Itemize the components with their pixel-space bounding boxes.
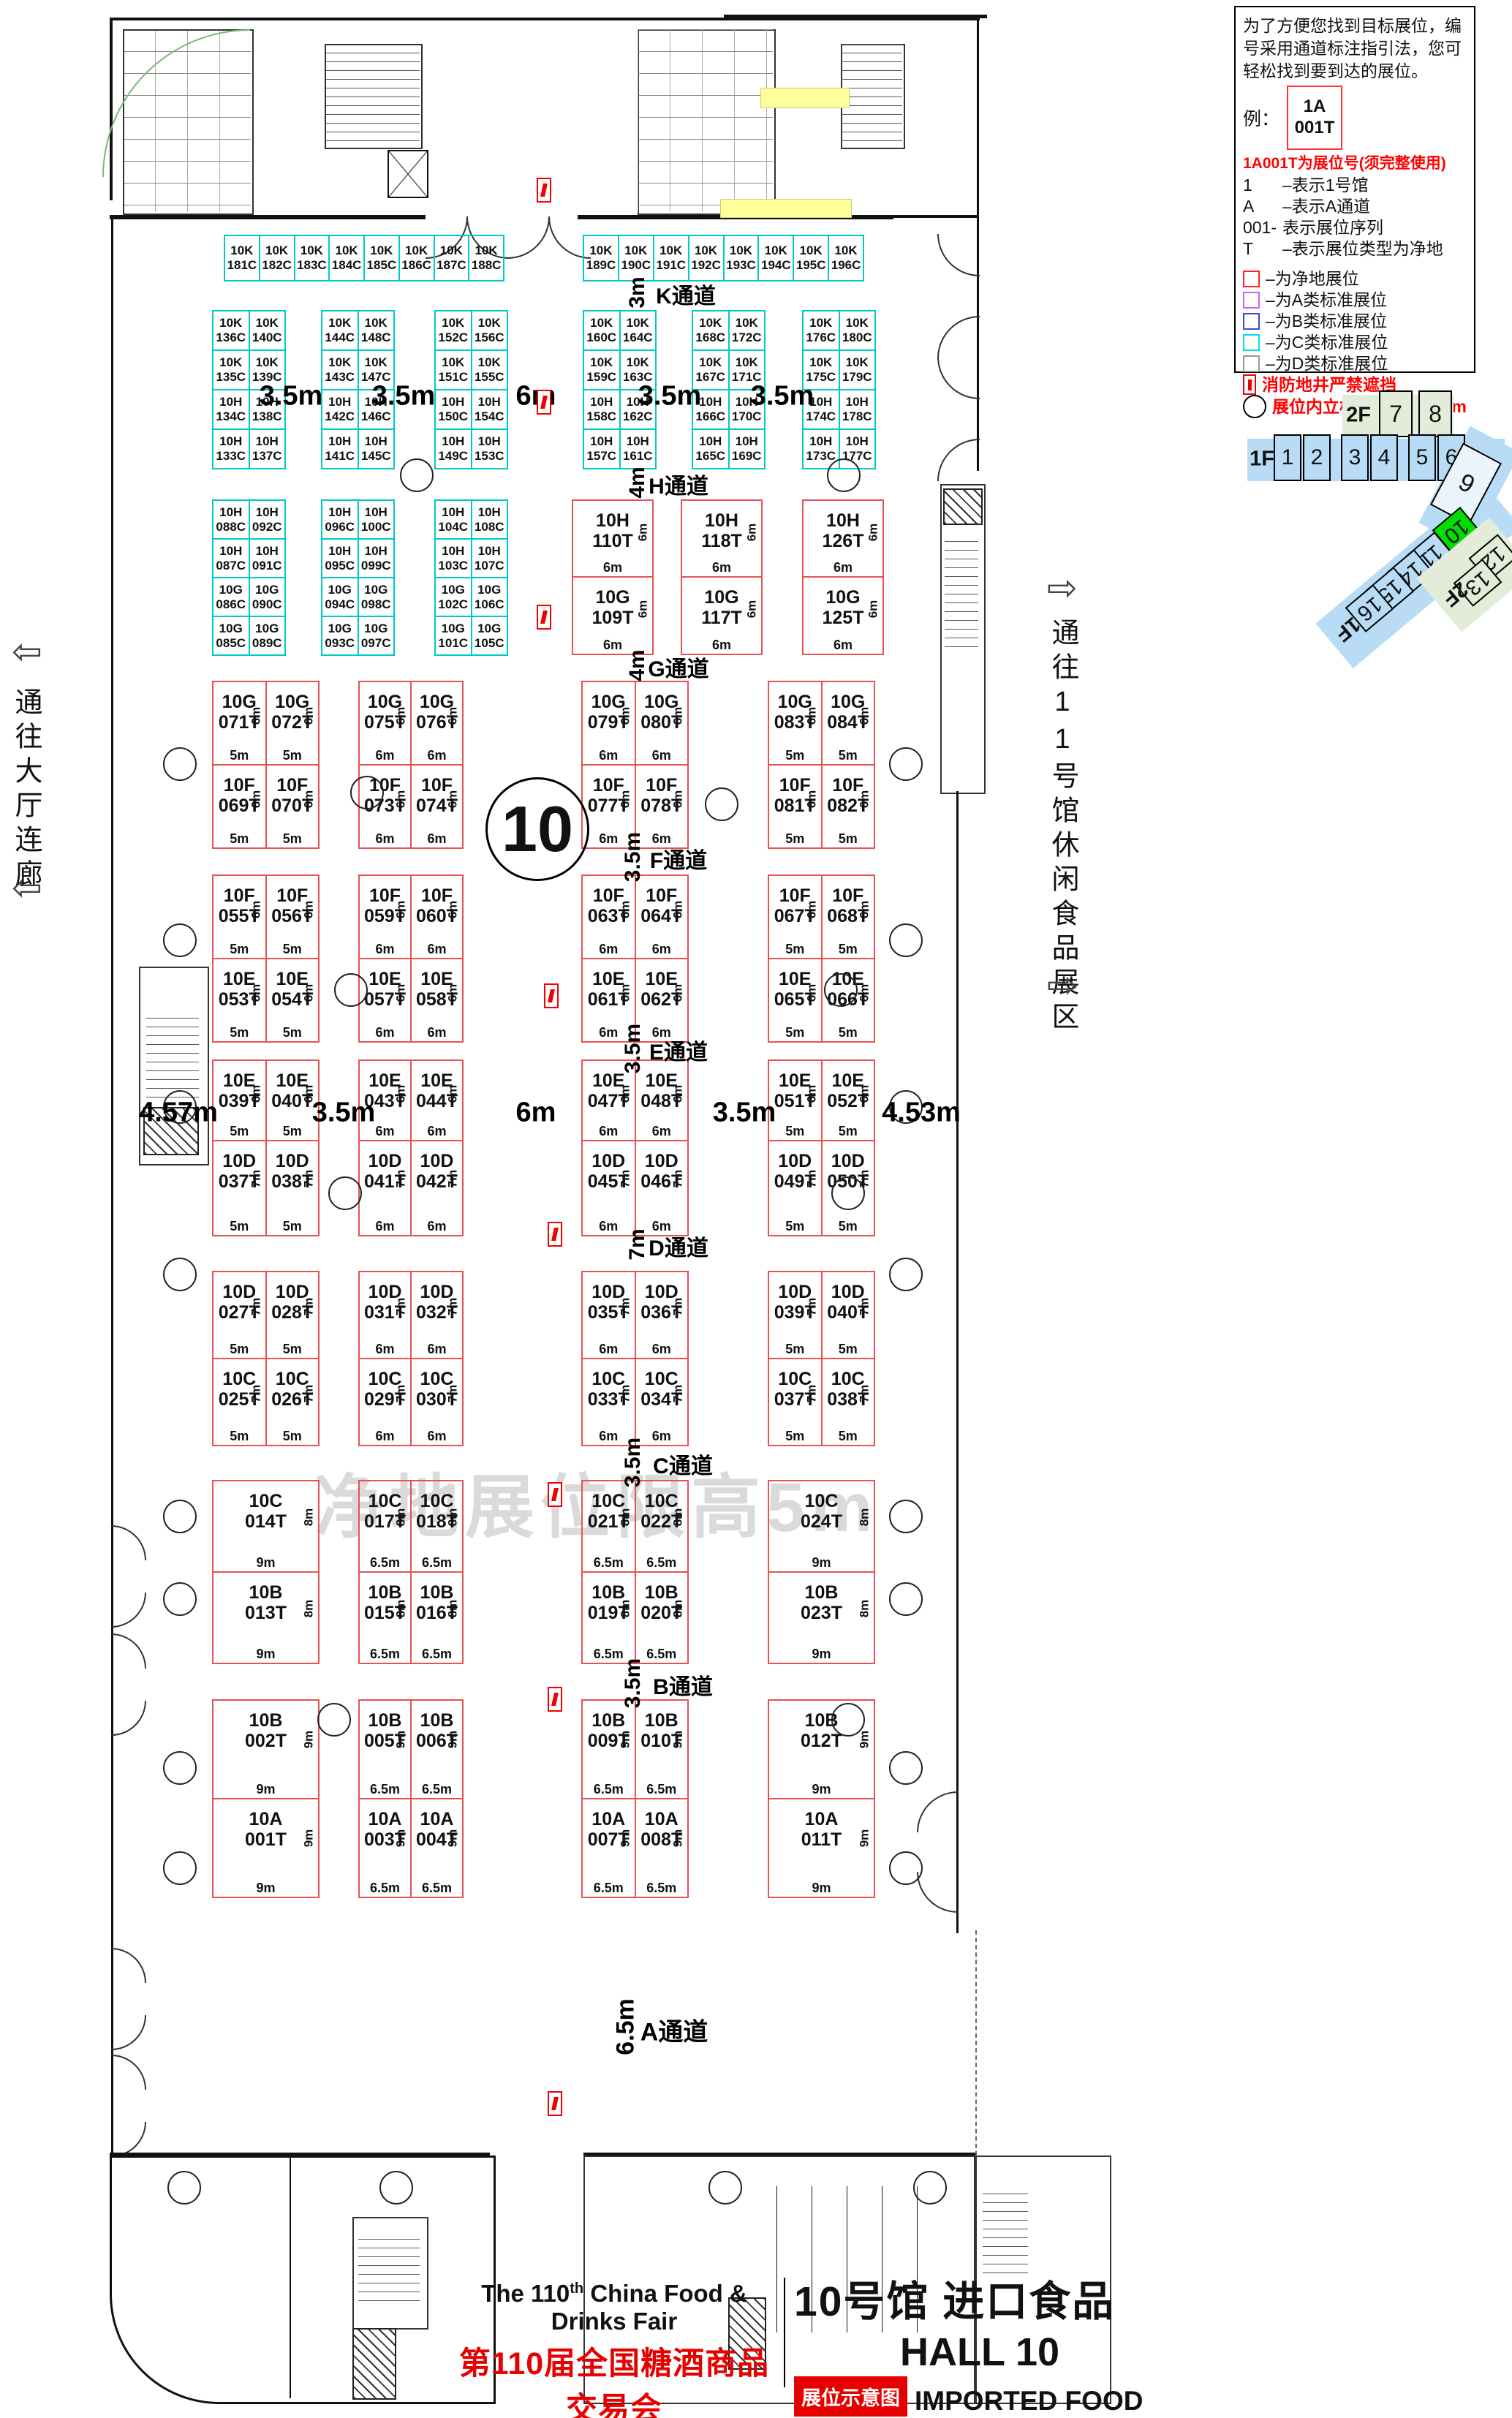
booth-type-swatch (1243, 355, 1260, 372)
minimap-hall-1: 1 (1274, 434, 1301, 481)
booth-10F-060T: 10F060T6m6m (410, 874, 464, 959)
booth-10G-093C: 10G093C (321, 616, 359, 656)
booth-10B-009T: 10B009T9m6.5m (581, 1699, 636, 1799)
booth-10D-046T: 10D046T7m6m (635, 1140, 689, 1236)
booth-label: 10K159C (586, 355, 616, 384)
booth-label: 10K151C (438, 355, 468, 384)
booth-cluster: 10H088C10H092C10H087C10H091C10G086C10G09… (212, 499, 284, 654)
dimension-label: 4m (625, 466, 650, 498)
booth-depth-dim: 8m (618, 1508, 632, 1527)
minimap-hall-4: 4 (1370, 434, 1398, 481)
column-circle (824, 973, 858, 1007)
booth-label: 10H100C (361, 505, 391, 534)
booth-depth-dim: 6m (866, 600, 881, 619)
column-circle (827, 458, 861, 492)
booth-depth-dim: 8m (394, 1600, 409, 1618)
dashed-boundary (975, 1930, 978, 2163)
legend-red-note: 1A001T为展位号(须完整使用) (1243, 151, 1467, 173)
booth-10A-004T: 10A004T9m6.5m (410, 1798, 464, 1898)
booth-10B-013T: 10B013T8m9m (212, 1571, 320, 1664)
legend-key-line: A–表示A通道 (1243, 196, 1467, 217)
booth-depth-dim: 6m (249, 790, 263, 809)
booth-cluster: 10H126T6m6m10G125T6m6m (802, 499, 882, 654)
booth-10H-108C: 10H108C (471, 499, 509, 540)
booth-10G-098C: 10G098C (358, 577, 396, 617)
booth-depth-dim: 7m (302, 1298, 317, 1316)
booth-width-dim: 5m (213, 748, 265, 763)
fire-well-icon (548, 1222, 562, 1247)
booth-10K-148C: 10K148C (358, 310, 396, 351)
hall-subtitle-en: IMPORTED FOOD (915, 2386, 1143, 2417)
booth-width-dim: 6m (804, 560, 882, 575)
booth-cluster: 10D035T7m6m10D036T7m6m10C033T7m6m10C034T… (581, 1271, 687, 1445)
plan-badge: 展位示意图 (794, 2376, 907, 2417)
booth-label: 10K184C (332, 243, 362, 272)
booth-label: 10H092C (252, 505, 282, 534)
booth-width-dim: 6m (412, 1025, 462, 1040)
booth-width-dim: 9m (213, 1647, 318, 1662)
booth-label: 10K188C (472, 243, 502, 272)
booth-label: 10G106C (475, 583, 504, 611)
booth-label: 10H099C (361, 544, 391, 573)
booth-label: 10K186C (401, 243, 431, 272)
booth-10H-099C: 10H099C (358, 538, 396, 578)
booth-depth-dim: 6m (618, 707, 632, 725)
column-circle (400, 458, 434, 492)
booth-depth-dim: 6m (804, 790, 819, 809)
booth-width-dim: 6.5m (360, 1647, 410, 1662)
booth-cluster: 10F067T6m5m10F068T6m5m10E065T6m5m10E066T… (768, 874, 874, 1041)
booth-width-dim: 6.5m (360, 1782, 410, 1797)
dimension-label: 3m (625, 276, 650, 308)
booth-10E-065T: 10E065T6m5m (768, 958, 823, 1043)
booth-width-dim: 5m (823, 942, 874, 957)
aisle-label: F通道 (650, 842, 707, 874)
booth-10C-029T: 10C029T7m6m (358, 1358, 412, 1446)
booth-cluster: 10E051T6m5m10E052T6m5m10D049T7m5m10D050T… (768, 1059, 874, 1235)
booth-label: 10G086C (216, 583, 246, 611)
booth-width-dim: 9m (213, 1782, 318, 1797)
booth-10D-031T: 10D031T7m6m (358, 1271, 412, 1359)
booth-label: 10H161C (623, 434, 653, 463)
booth-label: 10H154C (475, 395, 504, 423)
booth-10K-164C: 10K164C (619, 310, 657, 351)
booth-10B-023T: 10B023T8m9m (768, 1571, 875, 1664)
booth-10D-041T: 10D041T7m6m (358, 1140, 412, 1236)
wall-line (776, 2186, 777, 2332)
column-circle (350, 776, 384, 809)
booth-10H-100C: 10H100C (358, 499, 396, 540)
booth-10B-010T: 10B010T9m6.5m (635, 1699, 689, 1799)
booth-10H-103C: 10H103C (434, 538, 472, 578)
booth-width-dim: 9m (213, 1881, 318, 1896)
booth-label: 10K156C (475, 316, 504, 344)
booth-10K-144C: 10K144C (321, 310, 359, 351)
booth-10K-186C: 10K186C (398, 235, 435, 282)
minimap-hall-5: 5 (1408, 434, 1436, 481)
booth-10C-014T: 10C014T8m9m (212, 1480, 320, 1573)
booth-10K-192C: 10K192C (688, 235, 725, 282)
fire-well-icon (544, 983, 559, 1008)
booth-depth-dim: 7m (858, 1298, 872, 1316)
booth-width-dim: 5m (267, 831, 319, 847)
booth-depth-dim: 6m (394, 790, 409, 809)
booth-10D-037T: 10D037T7m5m (212, 1140, 267, 1236)
booth-10B-020T: 10B020T8m6.5m (635, 1571, 689, 1664)
booth-width-dim: 9m (213, 1555, 318, 1571)
booth-label: 10G102C (438, 583, 468, 611)
booth-depth-dim: 7m (671, 1385, 686, 1403)
booth-depth-dim: 7m (804, 1170, 819, 1188)
legend-key-list: 1–表示1号馆A–表示A通道001-表示展位序列T–表示展位类型为净地 (1243, 175, 1467, 260)
legend-key-line: 1–表示1号馆 (1243, 175, 1467, 196)
booth-depth-dim: 7m (394, 1170, 409, 1188)
booth-10E-052T: 10E052T6m5m (821, 1059, 876, 1141)
highlight-strip (760, 88, 850, 108)
dimension-label: 4.57m (139, 1097, 218, 1129)
booth-depth-dim: 7m (302, 1385, 317, 1403)
booth-label: 10K185C (367, 243, 397, 272)
booth-10E-054T: 10E054T6m5m (265, 958, 320, 1043)
booth-10K-190C: 10K190C (618, 235, 654, 282)
aisle-label: A通道 (640, 2012, 708, 2048)
booth-10K-185C: 10K185C (363, 235, 400, 282)
booth-10C-024T: 10C024T8m9m (768, 1480, 875, 1573)
booth-10D-036T: 10D036T7m6m (635, 1271, 689, 1359)
booth-width-dim: 6m (583, 942, 635, 957)
booth-width-dim: 6m (360, 942, 410, 957)
booth-width-dim: 5m (823, 748, 874, 763)
booth-label: 10K182C (262, 243, 292, 272)
booth-10K-188C: 10K188C (468, 235, 504, 282)
booth-width-dim: 5m (769, 1124, 821, 1139)
booth-10G-071T: 10G071T6m5m (212, 681, 267, 766)
booth-label: 10H141C (325, 434, 355, 463)
booth-width-dim: 5m (213, 1342, 265, 1357)
booth-width-dim: 5m (769, 748, 821, 763)
dimension-label: 3.5m (713, 1097, 776, 1129)
booth-label: 10H178C (842, 395, 872, 423)
dimension-label: 3.5m (621, 1024, 646, 1073)
column-circle (705, 787, 738, 821)
booth-label: 10K152C (438, 316, 468, 344)
booth-width-dim: 6m (360, 1342, 410, 1357)
booth-cluster: 10F063T6m6m10F064T6m6m10E061T6m6m10E062T… (581, 874, 687, 1041)
minimap-hall-2: 2 (1303, 434, 1331, 481)
dimension-label: 3.5m (372, 381, 436, 412)
legend-example-booth: 1A 001T (1287, 86, 1342, 150)
booth-width-dim: 5m (769, 1219, 821, 1234)
booth-10D-032T: 10D032T7m6m (410, 1271, 464, 1359)
booth-10H-178C: 10H178C (839, 389, 877, 430)
door-swing-arc (111, 1525, 146, 1560)
booth-10E-058T: 10E058T6m6m (410, 958, 464, 1043)
booth-depth-dim: 7m (671, 1298, 686, 1316)
booth-label: 10H091C (252, 544, 282, 573)
booth-depth-dim: 7m (446, 1298, 461, 1316)
booth-depth-dim: 7m (618, 1298, 632, 1316)
booth-10H-145C: 10H145C (358, 428, 396, 469)
booth-width-dim: 6m (583, 1342, 635, 1357)
elevator-icon (388, 150, 428, 198)
booth-width-dim: 6.5m (636, 1881, 688, 1896)
booth-width-dim: 5m (267, 1025, 319, 1040)
booth-type-swatch (1243, 334, 1260, 351)
booth-depth-dim: 9m (394, 1730, 409, 1748)
booth-depth-dim: 7m (446, 1385, 461, 1403)
room-outline (325, 44, 423, 149)
booth-cluster: 10B002T9m9m10A001T9m9m (212, 1699, 318, 1897)
booth-10G-079T: 10G079T6m6m (581, 681, 636, 766)
column-circle (328, 1176, 362, 1210)
aisle-label: E通道 (649, 1034, 708, 1066)
booth-depth-dim: 9m (671, 1730, 686, 1748)
booth-label: 10H088C (216, 505, 246, 534)
booth-label: 10H153C (475, 434, 504, 463)
fire-well-icon (548, 2091, 562, 2116)
booth-depth-dim: 9m (446, 1730, 461, 1748)
booth-width-dim: 5m (267, 1429, 319, 1444)
dimension-label: 3.5m (621, 1658, 646, 1708)
booth-depth-dim: 6m (804, 984, 819, 1002)
booth-10G-125T: 10G125T6m6m (802, 576, 884, 655)
column-circle (163, 1500, 197, 1533)
booth-width-dim: 6m (636, 1342, 688, 1357)
legend-fire-note: 消防地井严禁遮挡 (1262, 374, 1396, 395)
booth-10G-089C: 10G089C (249, 616, 287, 656)
booth-depth-dim: 9m (858, 1730, 872, 1748)
booth-label: 10K140C (252, 316, 282, 344)
booth-depth-dim: 6m (302, 707, 317, 725)
booth-label: 10G085C (216, 621, 246, 650)
booth-width-dim: 6m (360, 831, 410, 847)
booth-10H-137C: 10H137C (249, 428, 287, 469)
fire-well-icon (548, 1482, 562, 1507)
aisle-label: H通道 (649, 468, 708, 500)
booth-width-dim: 5m (267, 1219, 319, 1234)
booth-10K-168C: 10K168C (692, 310, 730, 351)
booth-depth-dim: 7m (618, 1170, 632, 1188)
booth-depth-dim: 6m (858, 984, 872, 1002)
booth-10A-007T: 10A007T9m6.5m (581, 1798, 636, 1898)
booth-width-dim: 5m (769, 831, 821, 847)
booth-width-dim: 5m (823, 1342, 874, 1357)
wall-line (893, 215, 977, 218)
booth-10B-016T: 10B016T8m6.5m (410, 1571, 464, 1664)
aisle-label: D通道 (649, 1230, 708, 1262)
booth-depth-dim: 6m (249, 901, 263, 919)
column-circle (708, 2171, 742, 2204)
legend-intro: 为了方便您找到目标展位，编号采用通道标注指引法，您可轻松找到要到达的展位。 (1243, 15, 1467, 83)
booth-label: 10K168C (695, 316, 725, 344)
wall-line (724, 15, 987, 18)
booth-10F-056T: 10F056T6m5m (265, 874, 320, 959)
booth-depth-dim: 9m (618, 1730, 632, 1748)
booth-label: 10G097C (361, 621, 391, 650)
floor-plan-canvas: 净地展位限高5m 10K181C10K182C10K183C10K184C10K… (0, 0, 1512, 2418)
booth-depth-dim: 6m (394, 707, 409, 725)
booth-label: 10K176C (806, 316, 836, 344)
legend-type-list: –为净地展位–为A类标准展位–为B类标准展位–为C类标准展位–为D类标准展位 (1243, 268, 1467, 374)
fair-title-cn: 第110届全国糖酒商品交易会 (452, 2338, 776, 2418)
booth-10K-195C: 10K195C (793, 235, 829, 282)
booth-depth-dim: 6m (671, 1084, 686, 1103)
booth-depth-dim: 8m (446, 1508, 461, 1527)
aisle-label: G通道 (648, 651, 708, 683)
booth-width-dim: 9m (769, 1881, 874, 1896)
booth-10K-151C: 10K151C (434, 350, 472, 390)
booth-width-dim: 6m (412, 1342, 462, 1357)
booth-10G-080T: 10G080T6m6m (635, 681, 689, 766)
booth-depth-dim: 6m (394, 984, 409, 1002)
booth-10K-155C: 10K155C (471, 350, 509, 390)
booth-label: 10G105C (475, 621, 504, 650)
wall-line (111, 219, 113, 2153)
booth-width-dim: 6m (636, 748, 688, 763)
booth-width-dim: 6.5m (360, 1555, 410, 1571)
booth-depth-dim: 8m (858, 1508, 872, 1527)
column-circle (831, 1703, 865, 1737)
booth-cluster: 10D039T7m5m10D040T7m5m10C037T7m5m10C038T… (768, 1271, 874, 1445)
booth-label: 10H157C (586, 434, 616, 463)
booth-10K-196C: 10K196C (828, 235, 864, 282)
legend-key-line: T–表示展位类型为净地 (1243, 238, 1467, 260)
booth-width-dim: 5m (823, 1219, 874, 1234)
booth-depth-dim: 6m (302, 790, 317, 809)
booth-10K-191C: 10K191C (653, 235, 689, 282)
booth-width-dim: 6m (412, 1124, 462, 1139)
booth-label: 10H165C (695, 434, 725, 463)
booth-depth-dim: 6m (858, 707, 872, 725)
booth-label: 10G094C (325, 583, 355, 611)
booth-depth-dim: 8m (671, 1600, 686, 1618)
booth-cluster: 10C017T8m6.5m10C018T8m6.5m10B015T8m6.5m1… (358, 1480, 462, 1663)
booth-10K-143C: 10K143C (321, 350, 359, 390)
dimension-label: 3.5m (621, 832, 646, 882)
door-swing-arc (111, 1948, 146, 1983)
highlight-strip (720, 199, 852, 218)
column-circle (889, 1258, 923, 1291)
booth-width-dim: 6.5m (412, 1782, 462, 1797)
booth-depth-dim: 6m (446, 790, 461, 809)
booth-10F-067T: 10F067T6m5m (768, 874, 823, 959)
booth-label: 10K190C (621, 243, 651, 272)
booth-width-dim: 6.5m (583, 1782, 635, 1797)
booth-width-dim: 5m (823, 1124, 874, 1139)
booth-depth-dim: 7m (858, 1385, 872, 1403)
booth-10K-135C: 10K135C (212, 350, 250, 390)
booth-label: 10H173C (806, 434, 836, 463)
booth-cluster: 10G075T6m6m10G076T6m6m10F073T6m6m10F074T… (358, 681, 462, 847)
booth-10C-037T: 10C037T7m5m (768, 1358, 823, 1446)
booth-width-dim: 6m (412, 831, 462, 847)
booth-width-dim: 5m (213, 1219, 265, 1234)
booth-depth-dim: 6m (618, 1084, 632, 1103)
booth-10G-109T: 10G109T6m6m (572, 576, 654, 655)
booth-width-dim: 5m (213, 1124, 265, 1139)
booth-10C-021T: 10C021T8m6.5m (581, 1480, 636, 1573)
booth-depth-dim: 6m (671, 790, 686, 809)
booth-depth-dim: 9m (446, 1829, 461, 1847)
booth-label: 10K180C (842, 316, 872, 344)
booth-width-dim: 6m (360, 1429, 410, 1444)
booth-label: 10K155C (475, 355, 504, 384)
booth-label: 10G093C (325, 621, 355, 650)
booth-depth-dim: 9m (858, 1829, 872, 1847)
booth-width-dim: 6m (360, 1219, 410, 1234)
booth-cluster: 10C024T8m9m10B023T8m9m (768, 1480, 874, 1663)
booth-depth-dim: 6m (446, 1084, 461, 1103)
booth-label: 10H087C (216, 544, 246, 573)
booth-depth-dim: 6m (804, 707, 819, 725)
booth-10G-085C: 10G085C (212, 616, 250, 656)
booth-label: 10G101C (438, 621, 468, 650)
booth-cluster: 10D031T7m6m10D032T7m6m10C029T7m6m10C030T… (358, 1271, 462, 1445)
wall-line (110, 215, 426, 219)
booth-depth-dim: 6m (858, 901, 872, 919)
legend-type-line: –为B类标准展位 (1243, 311, 1467, 332)
booth-type-swatch (1243, 292, 1260, 309)
booth-label: 10K179C (842, 355, 872, 384)
booth-label: 10K193C (726, 243, 756, 272)
booth-10G-106C: 10G106C (471, 577, 509, 617)
booth-10H-153C: 10H153C (471, 428, 509, 469)
wall-line (956, 791, 959, 1933)
booth-width-dim: 6.5m (360, 1881, 410, 1896)
booth-cluster: 10B005T9m6.5m10B006T9m6.5m10A003T9m6.5m1… (358, 1699, 462, 1897)
booth-10F-081T: 10F081T6m5m (768, 764, 823, 849)
booth-type-swatch (1243, 313, 1260, 330)
booth-10H-149C: 10H149C (434, 428, 472, 469)
booth-width-dim: 5m (267, 748, 319, 763)
booth-10G-083T: 10G083T6m5m (768, 681, 823, 766)
booth-10B-015T: 10B015T8m6.5m (358, 1571, 412, 1664)
stairs-pattern (945, 541, 978, 651)
booth-cluster: 10C014T8m9m10B013T8m9m (212, 1480, 318, 1663)
column-circle (889, 747, 923, 781)
booth-10K-182C: 10K182C (259, 235, 295, 282)
booth-label: 10H107C (475, 544, 504, 573)
booth-10K-194C: 10K194C (757, 235, 794, 282)
column-circle (163, 923, 197, 957)
booth-10G-117T: 10G117T6m6m (681, 576, 763, 655)
booth-cluster: 10B009T9m6.5m10B010T9m6.5m10A007T9m6.5m1… (581, 1699, 687, 1897)
booth-10B-005T: 10B005T9m6.5m (358, 1699, 412, 1799)
booth-width-dim: 5m (213, 831, 265, 847)
minimap-hall-3: 3 (1341, 434, 1369, 481)
booth-depth-dim: 8m (618, 1600, 632, 1618)
booth-cluster: 10D027T7m5m10D028T7m5m10C025T7m5m10C026T… (212, 1271, 318, 1445)
booth-depth-dim: 7m (671, 1170, 686, 1188)
column-circle (167, 2171, 201, 2204)
booth-10C-025T: 10C025T7m5m (212, 1358, 267, 1446)
booth-10C-034T: 10C034T7m6m (635, 1358, 689, 1446)
aisle-label: C通道 (653, 1448, 713, 1480)
door-swing-arc (937, 316, 980, 358)
booth-depth-dim: 9m (302, 1829, 317, 1847)
booth-10K-156C: 10K156C (471, 310, 509, 351)
booth-10K-180C: 10K180C (839, 310, 877, 351)
footer-divider (784, 2278, 785, 2387)
booth-10H-133C: 10H133C (212, 428, 250, 469)
booth-width-dim: 5m (213, 942, 265, 957)
booth-label: 10H145C (361, 434, 391, 463)
booth-10B-006T: 10B006T9m6.5m (410, 1699, 464, 1799)
booth-10K-140C: 10K140C (249, 310, 287, 351)
booth-cluster: 10H118T6m6m10G117T6m6m (681, 499, 761, 654)
booth-width-dim: 6.5m (636, 1555, 688, 1571)
column-circle (317, 1703, 351, 1737)
